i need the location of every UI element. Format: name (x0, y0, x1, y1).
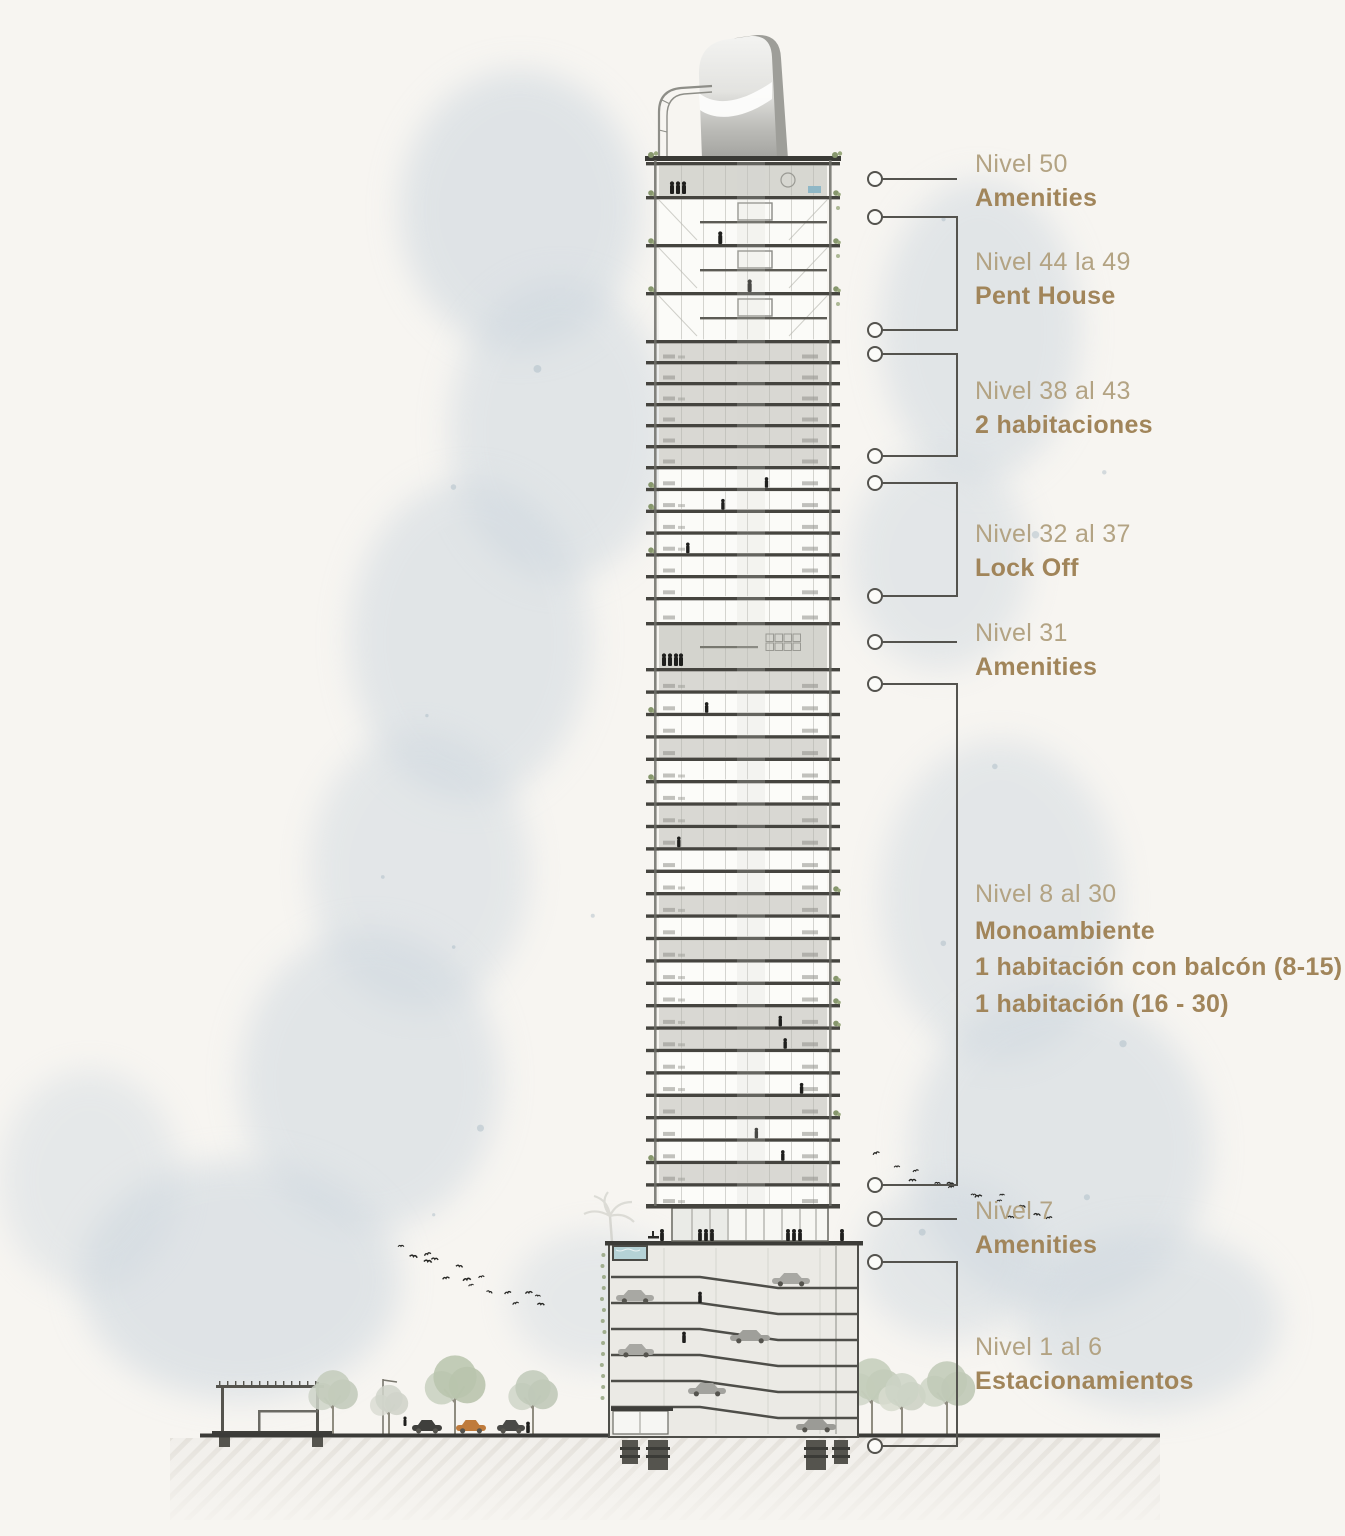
annotation-level: Nivel 7 (975, 1194, 1097, 1228)
section-diagram: Nivel 50 Amenities Nivel 44 la 49 Pent H… (0, 0, 1345, 1536)
street-trees-right (843, 1358, 975, 1435)
tower-section (645, 35, 842, 1209)
annotation-nivel-32-37: Nivel 32 al 37 Lock Off (975, 517, 1131, 585)
annotation-nivel-8-30: Nivel 8 al 30 Monoambiente 1 habitación … (975, 876, 1342, 1022)
annotation-unit: 1 habitación (16 - 30) (975, 986, 1342, 1023)
podium-parking (600, 1196, 863, 1437)
annotation-name: Estacionamientos (975, 1364, 1194, 1398)
lobby (611, 1407, 673, 1434)
building-illustration (0, 0, 1345, 1536)
underground (0, 1438, 1345, 1536)
annotation-nivel-31: Nivel 31 Amenities (975, 616, 1097, 684)
annotation-name: Pent House (975, 279, 1131, 313)
pool (613, 1246, 647, 1260)
annotation-name: Amenities (975, 1228, 1097, 1262)
annotation-name: 2 habitaciones (975, 408, 1153, 442)
annotation-unit: 1 habitación con balcón (8-15) (975, 949, 1342, 986)
roof-slab (645, 156, 841, 161)
annotation-name: Amenities (975, 650, 1097, 684)
annotation-level: Nivel 31 (975, 616, 1097, 650)
annotation-nivel-50: Nivel 50 Amenities (975, 147, 1097, 215)
crown-sculpture (699, 35, 788, 159)
annotation-level: Nivel 32 al 37 (975, 517, 1131, 551)
connector-nivel-50 (868, 172, 957, 186)
annotation-level: Nivel 50 (975, 147, 1097, 181)
annotation-level: Nivel 38 al 43 (975, 374, 1153, 408)
annotation-name: Monoambiente (975, 913, 1342, 950)
annotation-nivel-7: Nivel 7 Amenities (975, 1194, 1097, 1262)
annotation-nivel-38-43: Nivel 38 al 43 2 habitaciones (975, 374, 1153, 442)
street-cars (403, 1417, 529, 1434)
tower-floors (646, 160, 841, 1209)
annotation-nivel-1-6: Nivel 1 al 6 Estacionamientos (975, 1330, 1194, 1398)
annotation-level: Nivel 44 la 49 (975, 245, 1131, 279)
level7-pavilion (672, 1208, 828, 1241)
annotation-name: Lock Off (975, 551, 1131, 585)
annotation-level: Nivel 8 al 30 (975, 876, 1342, 913)
annotation-nivel-44-49: Nivel 44 la 49 Pent House (975, 245, 1131, 313)
annotation-level: Nivel 1 al 6 (975, 1330, 1194, 1364)
annotation-name: Amenities (975, 181, 1097, 215)
